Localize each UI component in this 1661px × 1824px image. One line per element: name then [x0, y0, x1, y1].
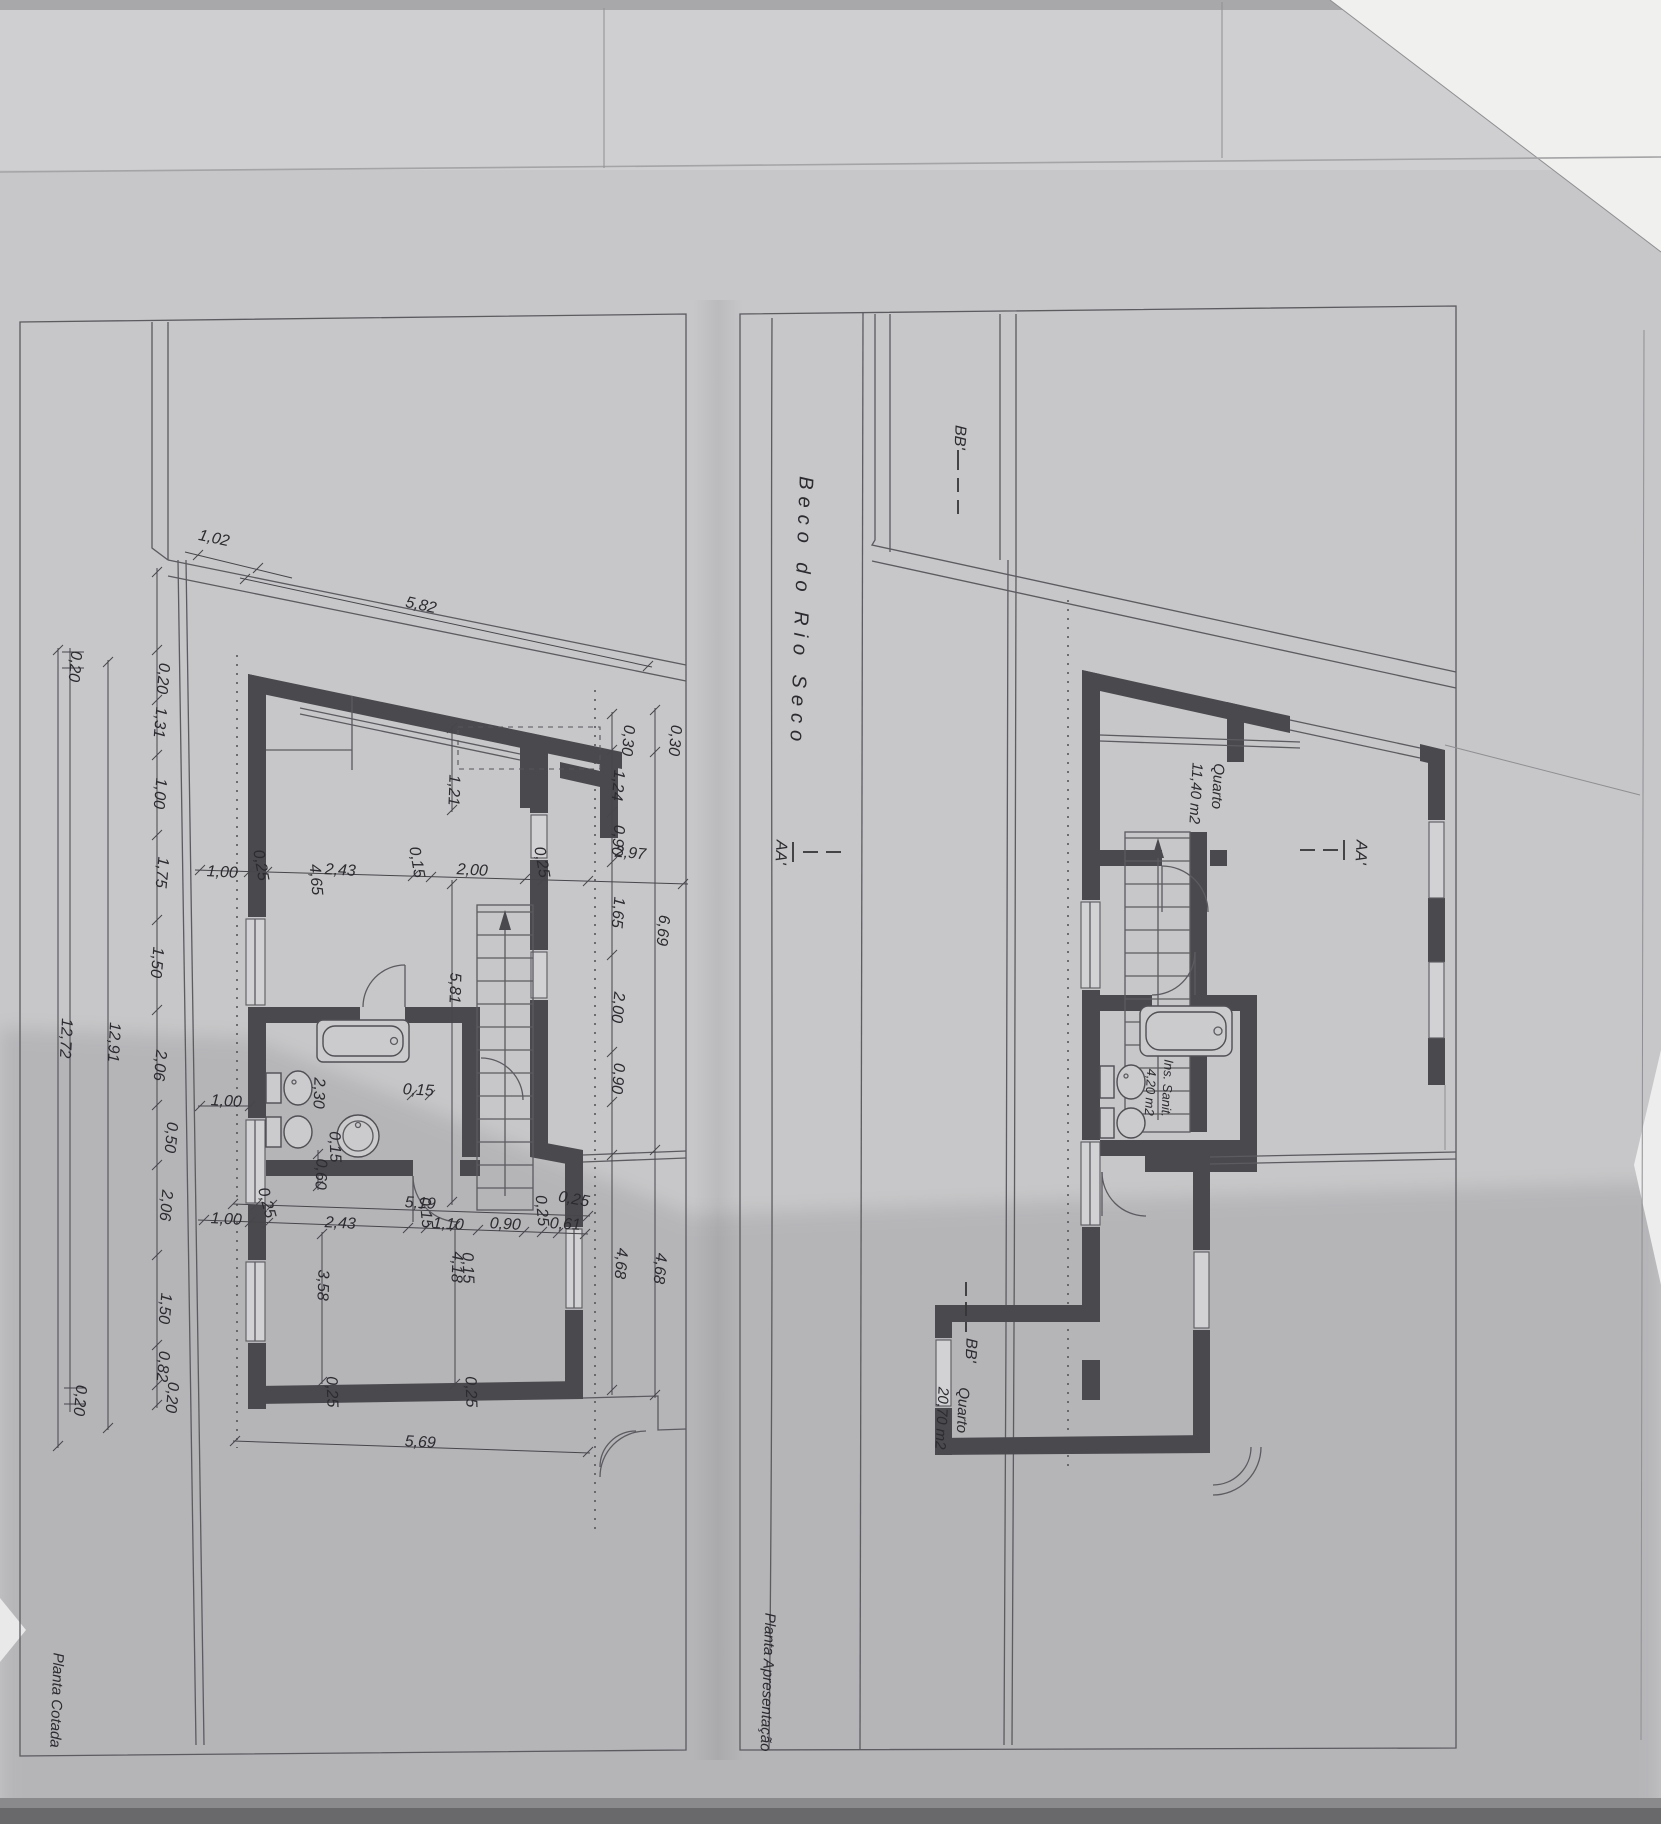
dim-label: 0,20	[162, 1381, 182, 1414]
dim-label: 0,30	[665, 724, 685, 757]
dim-label: 1,00	[210, 1210, 242, 1229]
dim-label: 2,43	[323, 1214, 356, 1233]
dim-label: 0,82	[153, 1350, 173, 1383]
dim-label: 1,75	[152, 856, 172, 889]
dim-label: 1,50	[155, 1292, 175, 1325]
dim-label: 2,00	[455, 861, 488, 880]
dim-label: 0,25	[532, 1194, 552, 1227]
section-marker: AA'	[1351, 839, 1369, 866]
dim-label: 0,25	[322, 1376, 340, 1408]
section-marker: AA'	[771, 839, 789, 866]
bidet-icon	[1100, 1108, 1114, 1138]
dim-label: 0,25	[461, 1376, 479, 1408]
dim-label: 0,90	[608, 824, 628, 857]
dim-label: 0,30	[618, 724, 638, 757]
toilet-icon	[1100, 1066, 1114, 1098]
dim-label: 2,30	[309, 1076, 327, 1109]
dim-label: 5,69	[404, 1433, 436, 1452]
dim-label: 12,72	[56, 1018, 75, 1059]
dim-label: 0,61	[549, 1215, 581, 1234]
dim-label: 1,10	[432, 1215, 464, 1234]
dim-label: 0,15	[402, 1081, 434, 1100]
dim-label: 0,90	[608, 1062, 628, 1095]
room-area-label: 11,40 m2	[1185, 762, 1205, 825]
floor-plan-drawing: 1,025,820,201,311,001,751,502,060,502,06…	[0, 0, 1661, 1824]
dim-label: 5,81	[445, 972, 463, 1004]
room-label: Ins. Sanit.	[1158, 1059, 1176, 1118]
dim-label: 2,00	[608, 990, 628, 1024]
dim-label: 1,50	[147, 946, 167, 979]
room-area-label: 20,70 m2	[931, 1386, 951, 1451]
dim-label: 6,69	[653, 914, 673, 947]
scanned-drawing-photo: 1,025,820,201,311,001,751,502,060,502,06…	[0, 0, 1661, 1824]
dim-label: 1,00	[210, 1092, 242, 1111]
dim-label: 1,24	[608, 769, 628, 802]
dim-label: 4,68	[650, 1252, 670, 1285]
dim-label: 1,00	[206, 863, 238, 882]
dim-label: 2,06	[150, 1048, 170, 1082]
dim-label: 4,65	[306, 863, 326, 896]
dim-label: 1,65	[608, 896, 628, 929]
toilet-icon	[266, 1073, 281, 1103]
room-label: Quarto	[953, 1387, 972, 1434]
room-area-label: 4,20 m2	[1142, 1068, 1159, 1116]
dim-label: 0,20	[65, 650, 85, 683]
section-marker: BB'	[961, 1338, 979, 1364]
dim-label: 1,31	[150, 706, 170, 739]
dim-label: 0,50	[161, 1121, 181, 1154]
dim-label: 0,20	[70, 1384, 90, 1417]
dim-label: 12,91	[104, 1022, 123, 1063]
dim-label: 1,21	[444, 774, 462, 806]
fold-crease	[693, 300, 743, 1760]
dim-label: 4,68	[611, 1247, 631, 1280]
dim-label: 1,00	[150, 777, 170, 810]
bidet-icon	[266, 1117, 281, 1147]
plan-title: Planta Cotada	[46, 1652, 66, 1748]
dim-label: 2,43	[323, 861, 356, 880]
dim-label: 0,90	[489, 1215, 521, 1234]
section-marker: BB'	[950, 425, 968, 451]
dim-label: 4,18	[447, 1251, 465, 1283]
dim-label: 3,58	[313, 1269, 331, 1301]
dim-label: 0,60	[311, 1158, 329, 1190]
dim-label: 2,06	[156, 1188, 176, 1222]
dim-label: 0,20	[153, 662, 173, 695]
room-label: Quarto	[1208, 763, 1227, 810]
